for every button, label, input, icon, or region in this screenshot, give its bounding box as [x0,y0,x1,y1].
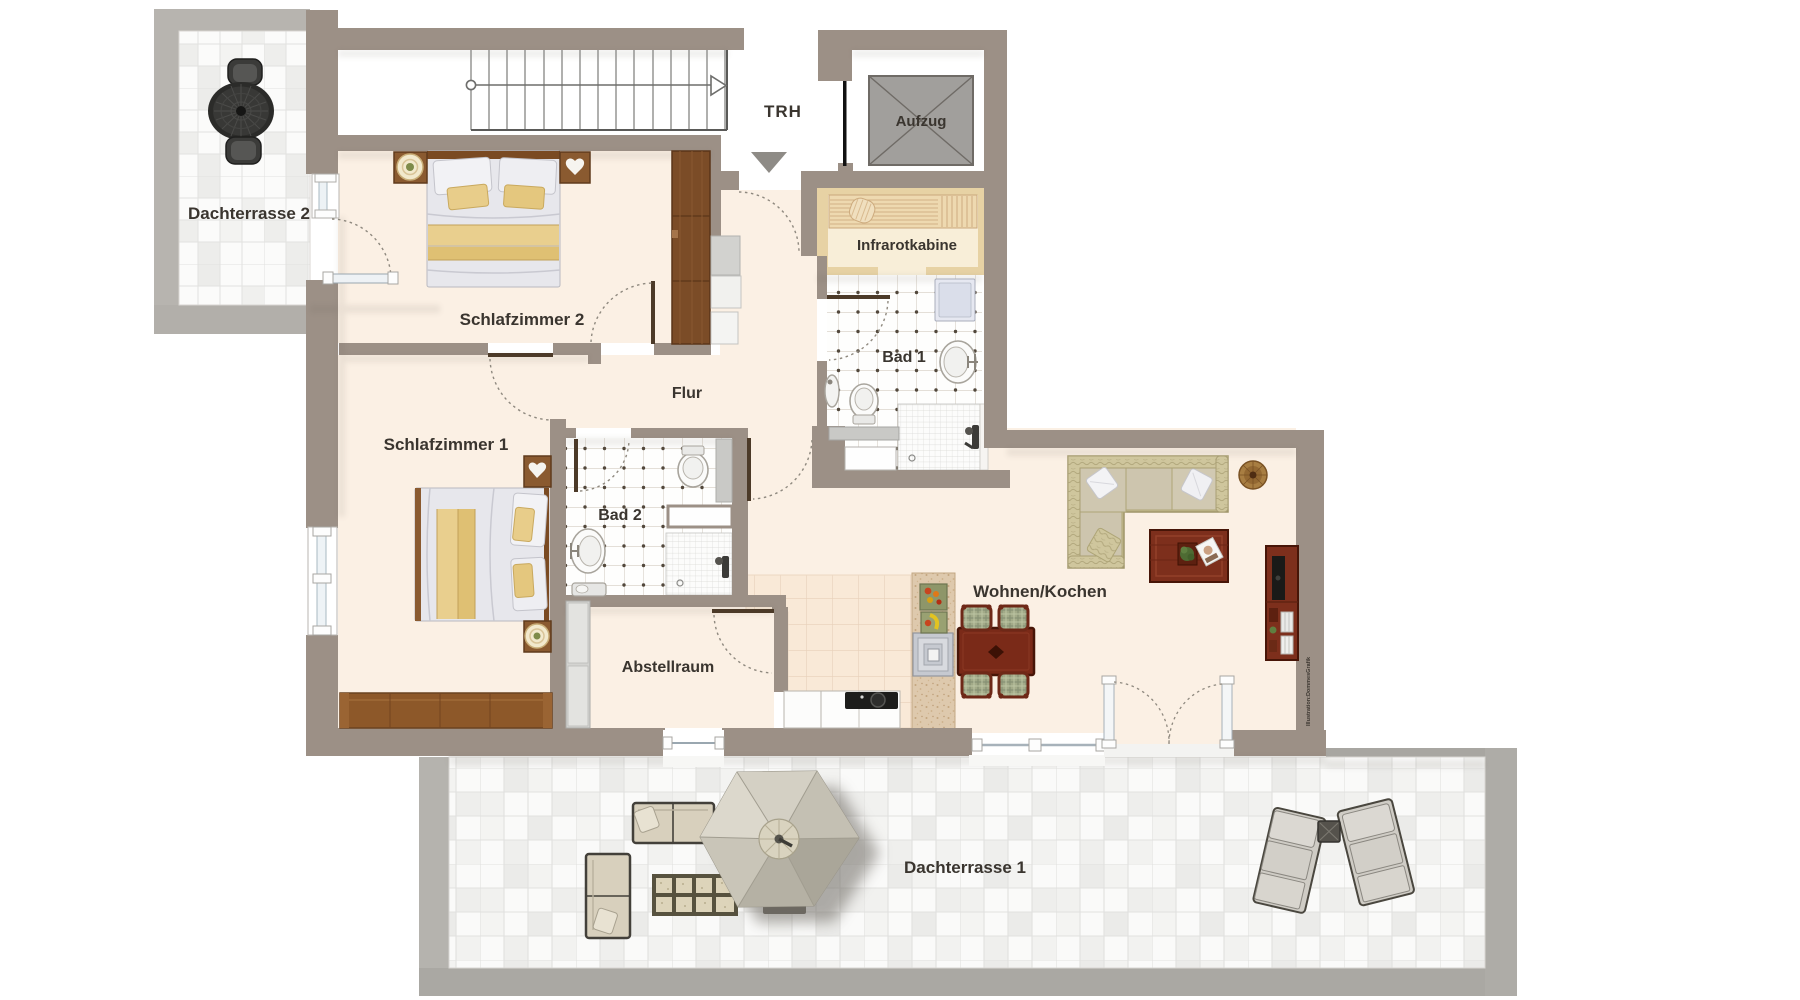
svg-text:Bad 2: Bad 2 [598,507,642,524]
svg-text:Flur: Flur [672,385,702,402]
svg-text:Dachterrasse 2: Dachterrasse 2 [188,204,310,223]
svg-text:Schlafzimmer 1: Schlafzimmer 1 [384,435,509,454]
svg-text:Infrarotkabine: Infrarotkabine [857,237,957,254]
svg-text:Abstellraum: Abstellraum [622,659,714,676]
svg-text:Aufzug: Aufzug [896,113,947,130]
svg-text:TRH: TRH [764,102,802,121]
svg-text:Illustration:DommesGrafik: Illustration:DommesGrafik [1306,656,1312,726]
svg-text:Dachterrasse 1: Dachterrasse 1 [904,858,1026,877]
svg-text:Wohnen/Kochen: Wohnen/Kochen [973,582,1107,601]
svg-text:Schlafzimmer 2: Schlafzimmer 2 [460,310,585,329]
svg-text:Bad 1: Bad 1 [882,349,926,366]
